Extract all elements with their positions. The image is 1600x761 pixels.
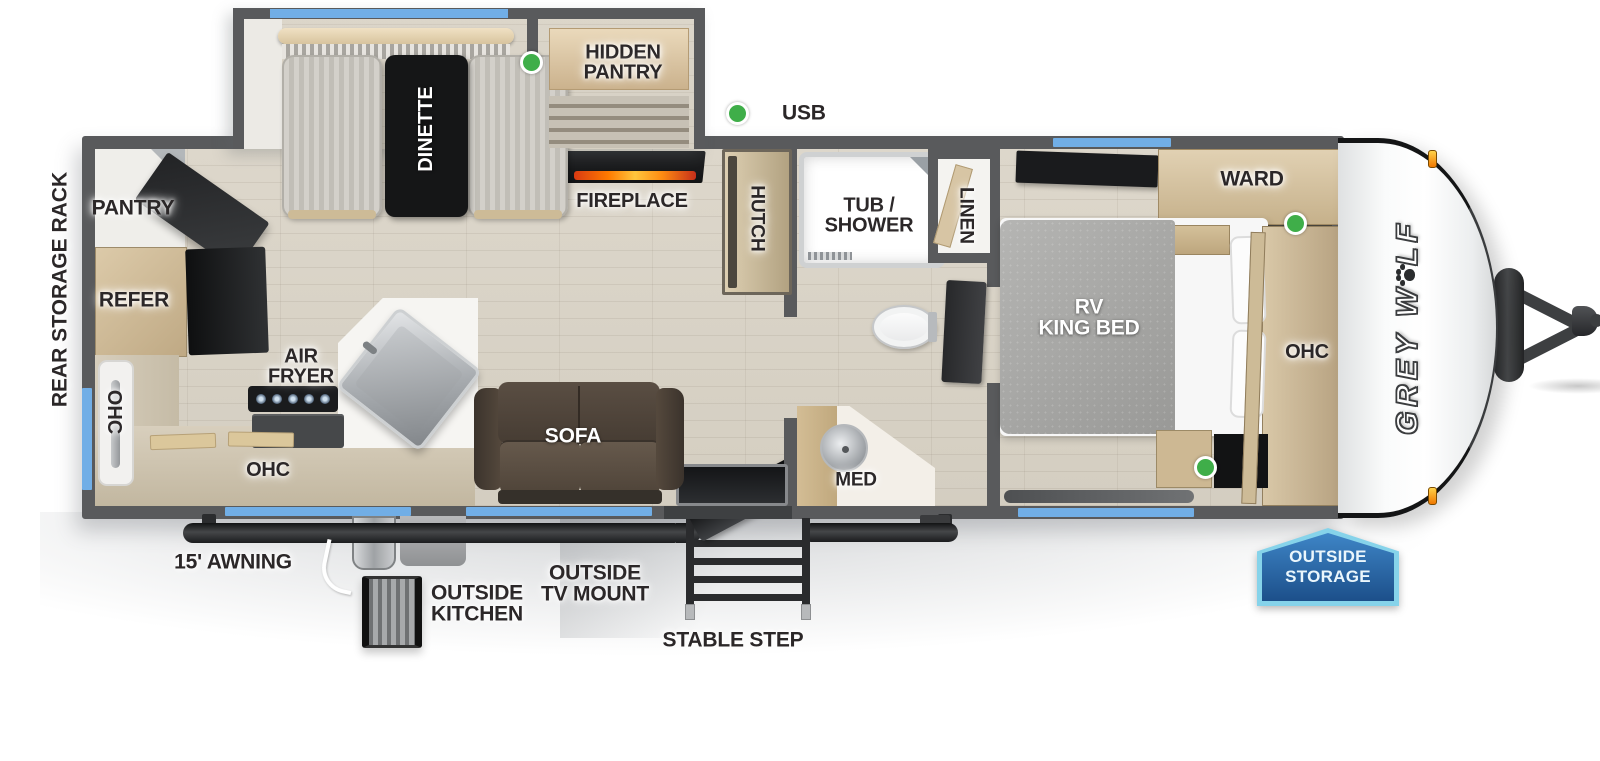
- bedroom-window: [1053, 138, 1171, 147]
- sofa-armrest: [656, 388, 684, 490]
- ward-label: WARD: [1220, 168, 1283, 189]
- outside-kitchen-label: OUTSIDE KITCHEN: [431, 583, 523, 626]
- usb-label: USB: [782, 102, 826, 123]
- bathroom-sink: [820, 424, 868, 472]
- tongue-jack: [1494, 268, 1524, 382]
- bedroom-overhead-cabinet: [1262, 226, 1344, 506]
- sink-faucet: [361, 340, 378, 355]
- bedroom-tv: [1015, 151, 1158, 188]
- slideout-wall: [694, 8, 705, 149]
- living-window: [466, 507, 652, 516]
- step-rail: [802, 518, 810, 606]
- refer-label: REFER: [99, 289, 169, 310]
- bed-storage-box: [1214, 434, 1268, 488]
- shower-jets: [808, 252, 852, 260]
- air-fryer-label: AIR FRYER: [268, 347, 334, 388]
- pantry-label: PANTRY: [92, 197, 175, 218]
- rv-king-bed-label: RV KING BED: [1038, 297, 1139, 340]
- refrigerator: [185, 247, 269, 356]
- burner-icon: [320, 394, 330, 404]
- rear-window: [82, 388, 92, 490]
- window-valance: [278, 28, 514, 44]
- ohc-bedroom-label: OHC: [1285, 342, 1329, 362]
- paw-print-icon: [1404, 269, 1415, 281]
- floorplan-canvas: GREY WLF OUTSIDE STORAGE REAR STORAGE RA…: [0, 0, 1600, 761]
- cutting-board: [228, 431, 294, 447]
- awning-tube: [183, 523, 677, 543]
- usb-indicator-icon: [520, 51, 543, 74]
- stable-step-label: STABLE STEP: [663, 629, 804, 650]
- bedroom-side-window: [1018, 508, 1194, 517]
- sofa-base: [498, 490, 662, 504]
- sofa-label: SOFA: [545, 425, 601, 446]
- awning-label: 15' AWNING: [174, 551, 292, 572]
- cooktop: [248, 386, 338, 412]
- outside-storage-label: OUTSIDE STORAGE: [1285, 547, 1371, 586]
- toilet: [872, 305, 936, 349]
- step-rung: [694, 540, 802, 547]
- outside-tv-mount-label: OUTSIDE TV MOUNT: [541, 563, 649, 606]
- awning-tube-rear: [808, 523, 958, 542]
- brand-logo-text-start: GREY W: [1391, 284, 1424, 435]
- usb-indicator-icon: [1194, 456, 1217, 479]
- sofa-seat: [580, 440, 660, 494]
- burner-icon: [304, 394, 314, 404]
- hutch-label: HUTCH: [748, 144, 767, 294]
- rear-storage-rack-label: REAR STORAGE RACK: [50, 140, 71, 440]
- bathroom-door: [941, 280, 986, 384]
- dinette-label: DINETTE: [416, 44, 436, 214]
- usb-indicator-icon: [726, 102, 749, 125]
- badge-fill: OUTSIDE STORAGE: [1262, 533, 1394, 601]
- kitchen-window: [225, 507, 411, 516]
- dinette-bench: [282, 55, 382, 218]
- hidden-pantry-shelves: [549, 96, 689, 148]
- hitch-shadow: [1528, 378, 1600, 394]
- usb-indicator-icon: [1284, 212, 1307, 235]
- fireplace-flame-icon: [574, 171, 696, 180]
- burner-icon: [272, 394, 282, 404]
- outside-storage-badge: OUTSIDE STORAGE: [1257, 528, 1399, 606]
- step-rung: [694, 558, 802, 565]
- slideout-wall: [233, 8, 244, 149]
- bench-trim: [288, 210, 376, 219]
- bathroom-wall: [987, 383, 1000, 506]
- stable-step-graphic: [686, 518, 810, 622]
- brand-logo-text-end: LF: [1391, 219, 1424, 266]
- outside-kitchen-icon: [362, 576, 422, 648]
- step-foot: [685, 604, 695, 620]
- hitch-ball: [1590, 314, 1600, 327]
- entry-door-mat: [676, 464, 788, 506]
- med-label: MED: [835, 470, 877, 489]
- slideout-interior-wall: [244, 19, 282, 149]
- fireplace-label: FIREPLACE: [576, 191, 688, 211]
- linen-label: LINEN: [957, 151, 976, 281]
- brand-logo: GREY WLF: [1393, 147, 1433, 507]
- tub-shower-label: TUB / SHOWER: [825, 196, 914, 237]
- slideout-window: [270, 9, 508, 18]
- sink-drain: [842, 446, 849, 453]
- bedroom-floor-rail: [1004, 490, 1194, 503]
- hutch-edge: [728, 156, 737, 288]
- hidden-pantry-label: HIDDEN PANTRY: [584, 43, 663, 84]
- burner-icon: [256, 394, 266, 404]
- ohc-wall-label: OHC: [104, 357, 124, 467]
- cutting-board: [150, 433, 216, 450]
- burner-icon: [288, 394, 298, 404]
- step-rung: [694, 594, 802, 601]
- bathroom-wall: [987, 263, 1000, 287]
- sofa-seat: [500, 440, 580, 494]
- bench-trim: [474, 210, 562, 219]
- ohc-counter-label: OHC: [246, 460, 290, 480]
- toilet-tank: [928, 312, 937, 342]
- step-foot: [801, 604, 811, 620]
- step-rung: [694, 576, 802, 583]
- step-rail: [686, 518, 694, 606]
